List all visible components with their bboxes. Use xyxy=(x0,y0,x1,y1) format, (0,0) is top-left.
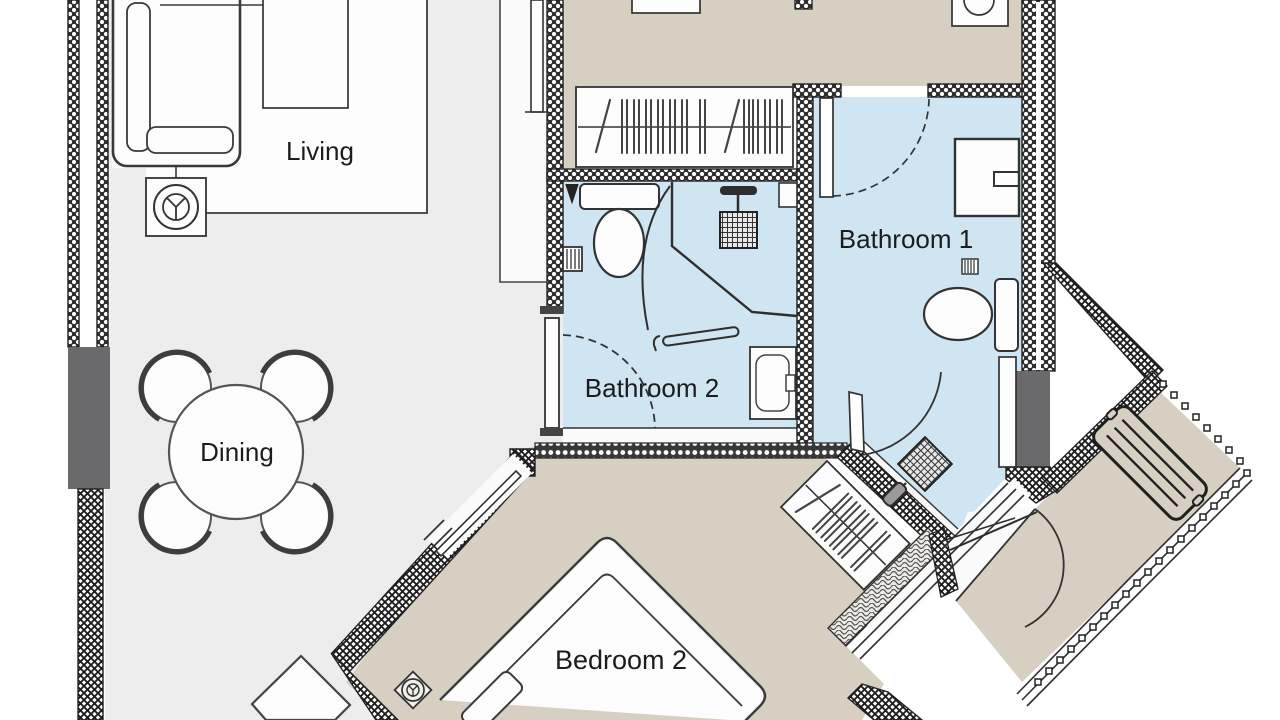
svg-text:Living: Living xyxy=(286,136,354,166)
svg-text:Bedroom 2: Bedroom 2 xyxy=(555,645,687,675)
svg-text:Bathroom 2: Bathroom 2 xyxy=(585,373,719,403)
svg-text:Bathroom 1: Bathroom 1 xyxy=(839,224,973,254)
svg-text:Dining: Dining xyxy=(200,437,274,467)
